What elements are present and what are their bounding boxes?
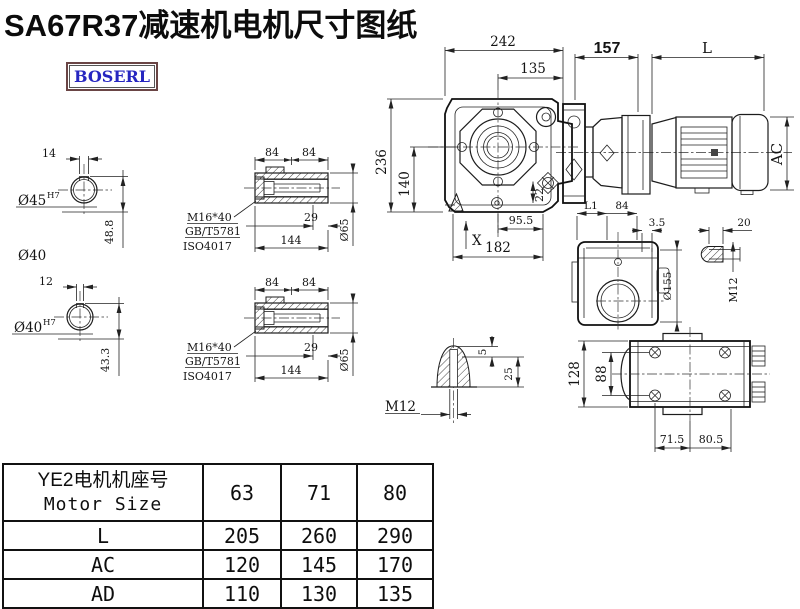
dim-182: 182: [485, 240, 511, 256]
row-label-L: L: [3, 521, 203, 550]
dim-bore1-fit: H7: [47, 191, 60, 201]
col-header-63: 63: [203, 464, 281, 521]
dim-height1: 48.8: [103, 220, 116, 245]
cell-AD-63: 110: [203, 579, 281, 608]
table-row: AC 120 145 170: [3, 550, 433, 579]
label-std2: ISO4017: [183, 240, 232, 253]
label-m12-dome: M12: [385, 399, 416, 415]
table-row: AD 110 130 135: [3, 579, 433, 608]
cell-AC-71: 145: [281, 550, 357, 579]
motor-assembly-view: 157 L AC: [556, 39, 794, 203]
dim-236: 236: [374, 149, 390, 175]
label-x: X: [472, 233, 482, 249]
top-view: 128 88 71.5 80.5: [567, 327, 770, 452]
dim-od1: Ø40: [18, 248, 46, 264]
dim-bore2-fit: H7: [43, 318, 56, 328]
keyslot-detail: 20 M12: [698, 217, 752, 303]
col-header-71: 71: [281, 464, 357, 521]
dim-157: 157: [594, 40, 621, 57]
dim-20: 20: [737, 217, 750, 229]
table-header-cell: YE2电机机座号 Motor Size: [3, 464, 203, 521]
cell-L-63: 205: [203, 521, 281, 550]
dim-140: 140: [397, 171, 413, 197]
bushing-drawing: 84 84 29 144 Ø65 M16*40 GB/T5781: [183, 146, 358, 253]
dome-detail: M12 5 25: [385, 336, 524, 424]
table-row: L 205 260 290: [3, 521, 433, 550]
cell-L-80: 290: [357, 521, 433, 550]
drawing-sheet: SA67R37减速机电机尺寸图纸 BOSERL 14: [0, 0, 800, 609]
dim-m12-slot: M12: [727, 277, 740, 302]
input-side-view: L1 84 3.5 Ø155: [572, 200, 682, 332]
dim-144: 144: [281, 234, 302, 247]
col-header-80: 80: [357, 464, 433, 521]
motor-size-table: YE2电机机座号 Motor Size 63 71 80 L 205 260 2…: [2, 463, 434, 609]
row-label-AD: AD: [3, 579, 203, 608]
dim-22: 22: [533, 188, 546, 202]
cell-L-71: 260: [281, 521, 357, 550]
dim-95-5: 95.5: [509, 214, 534, 227]
cell-AC-63: 120: [203, 550, 281, 579]
dim-29: 29: [304, 211, 318, 224]
dim-80-5: 80.5: [699, 433, 724, 446]
dim-input-84: 84: [615, 200, 629, 212]
dim-84b: 84: [302, 146, 316, 159]
dim-25: 25: [503, 367, 515, 380]
dim-AC: AC: [768, 143, 786, 166]
dim-L: L: [702, 39, 712, 57]
shaft-section-1: 14 Ø45 H7 48.8 Ø40: [16, 147, 128, 264]
dim-71-5: 71.5: [660, 433, 685, 446]
dim-242: 242: [490, 34, 516, 50]
row-label-AC: AC: [3, 550, 203, 579]
dim-key1: 14: [42, 147, 56, 160]
cell-AD-80: 135: [357, 579, 433, 608]
dim-height2: 43.3: [99, 348, 112, 373]
dim-5: 5: [477, 349, 489, 356]
dim-135: 135: [520, 61, 546, 77]
dim-3-5: 3.5: [649, 217, 666, 229]
dim-key2: 12: [39, 275, 53, 288]
dim-88: 88: [594, 365, 610, 382]
table-header-en: Motor Size: [4, 493, 202, 517]
dim-dia155: Ø155: [662, 272, 674, 301]
dim-dia65: Ø65: [338, 218, 351, 241]
label-thread: M16*40: [187, 211, 232, 224]
front-view: 22 242 135 236 140 95.5: [374, 34, 580, 261]
dim-84a: 84: [265, 146, 279, 159]
cell-AD-71: 130: [281, 579, 357, 608]
cell-AC-80: 170: [357, 550, 433, 579]
dim-L1: L1: [584, 200, 598, 212]
table-header-cn: YE2电机机座号: [4, 469, 202, 493]
dim-128: 128: [567, 361, 583, 387]
shaft-section-2: 12 Ø40 H7 43.3: [12, 275, 124, 376]
label-std1: GB/T5781: [185, 225, 241, 238]
